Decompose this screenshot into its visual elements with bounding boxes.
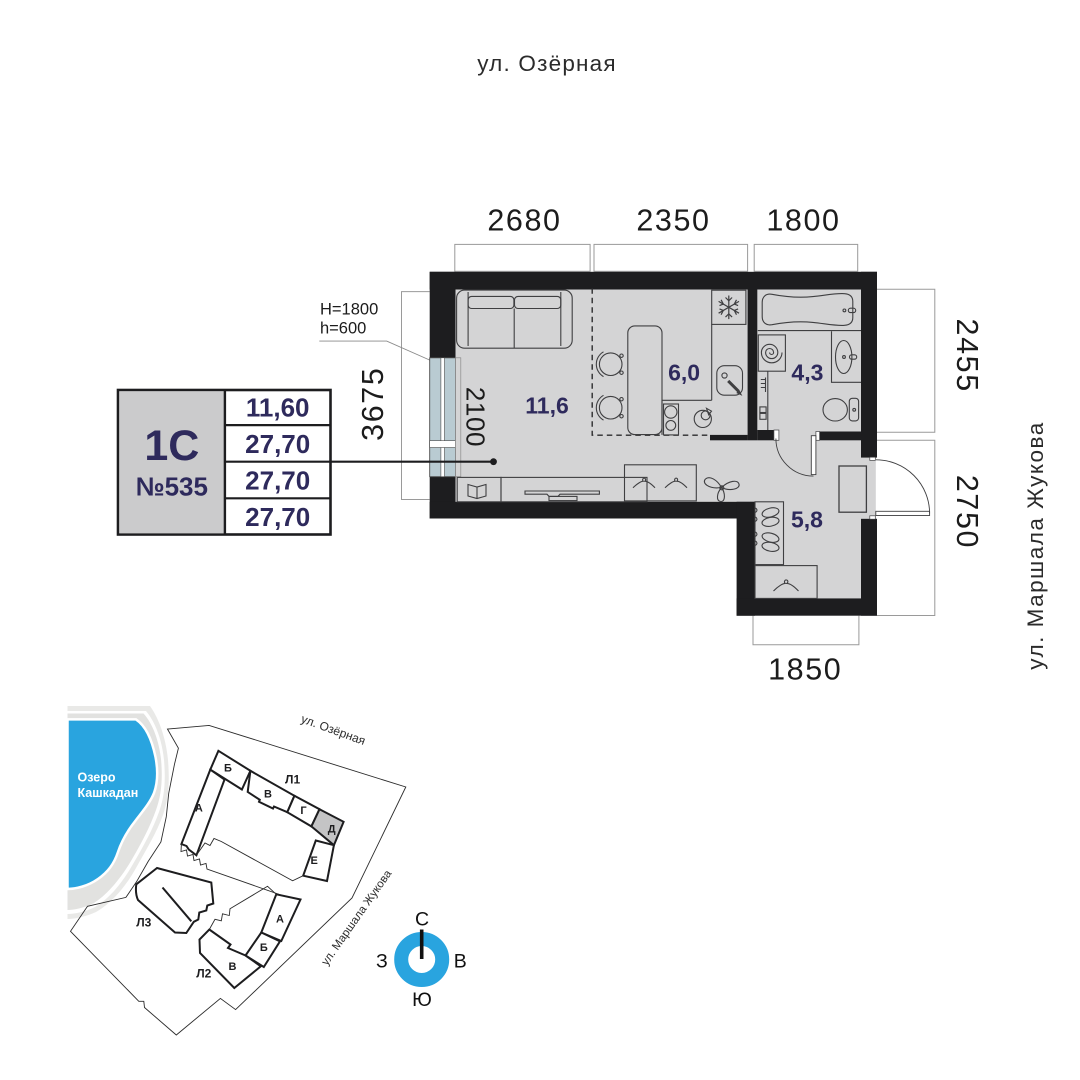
svg-text:2350: 2350: [636, 203, 710, 237]
svg-text:Кашкадан: Кашкадан: [78, 786, 139, 800]
svg-text:З: З: [376, 950, 388, 972]
svg-text:Л3: Л3: [136, 916, 151, 930]
svg-text:1С: 1С: [144, 422, 199, 470]
svg-text:ул. Маршала Жукова: ул. Маршала Жукова: [1023, 421, 1048, 669]
svg-text:В: В: [264, 789, 272, 801]
svg-text:2750: 2750: [950, 475, 984, 549]
svg-text:А: А: [195, 802, 203, 814]
svg-text:С: С: [415, 909, 429, 931]
svg-text:6,0: 6,0: [668, 360, 700, 386]
svg-text:27,70: 27,70: [245, 429, 310, 459]
svg-text:Л1: Л1: [285, 772, 300, 786]
svg-text:ул. Озёрная: ул. Озёрная: [299, 712, 367, 748]
svg-text:ул. Озёрная: ул. Озёрная: [477, 51, 617, 76]
svg-text:Е: Е: [311, 855, 318, 867]
svg-text:11,60: 11,60: [246, 392, 310, 422]
svg-text:5,8: 5,8: [791, 507, 823, 533]
svg-text:В: В: [454, 950, 467, 972]
svg-text:11,6: 11,6: [525, 393, 569, 419]
svg-text:3675: 3675: [356, 367, 390, 441]
svg-text:1800: 1800: [766, 203, 840, 237]
svg-text:2680: 2680: [487, 203, 561, 237]
svg-text:4,3: 4,3: [791, 360, 823, 386]
svg-text:№535: №535: [136, 472, 208, 502]
svg-text:27,70: 27,70: [245, 502, 310, 532]
svg-text:27,70: 27,70: [245, 465, 310, 495]
svg-text:А: А: [276, 913, 284, 925]
svg-text:h=600: h=600: [320, 320, 366, 338]
svg-text:Л2: Л2: [196, 966, 211, 980]
svg-text:Г: Г: [300, 805, 307, 817]
svg-text:2100: 2100: [460, 387, 490, 447]
svg-text:Озеро: Озеро: [78, 771, 116, 785]
svg-text:Д: Д: [328, 823, 336, 835]
svg-text:В: В: [229, 961, 237, 973]
svg-text:2455: 2455: [950, 319, 984, 393]
svg-text:Ю: Ю: [412, 989, 432, 1011]
svg-text:Б: Б: [224, 763, 232, 775]
svg-text:1850: 1850: [768, 653, 842, 687]
svg-text:Б: Б: [260, 942, 268, 954]
svg-text:H=1800: H=1800: [320, 300, 378, 318]
